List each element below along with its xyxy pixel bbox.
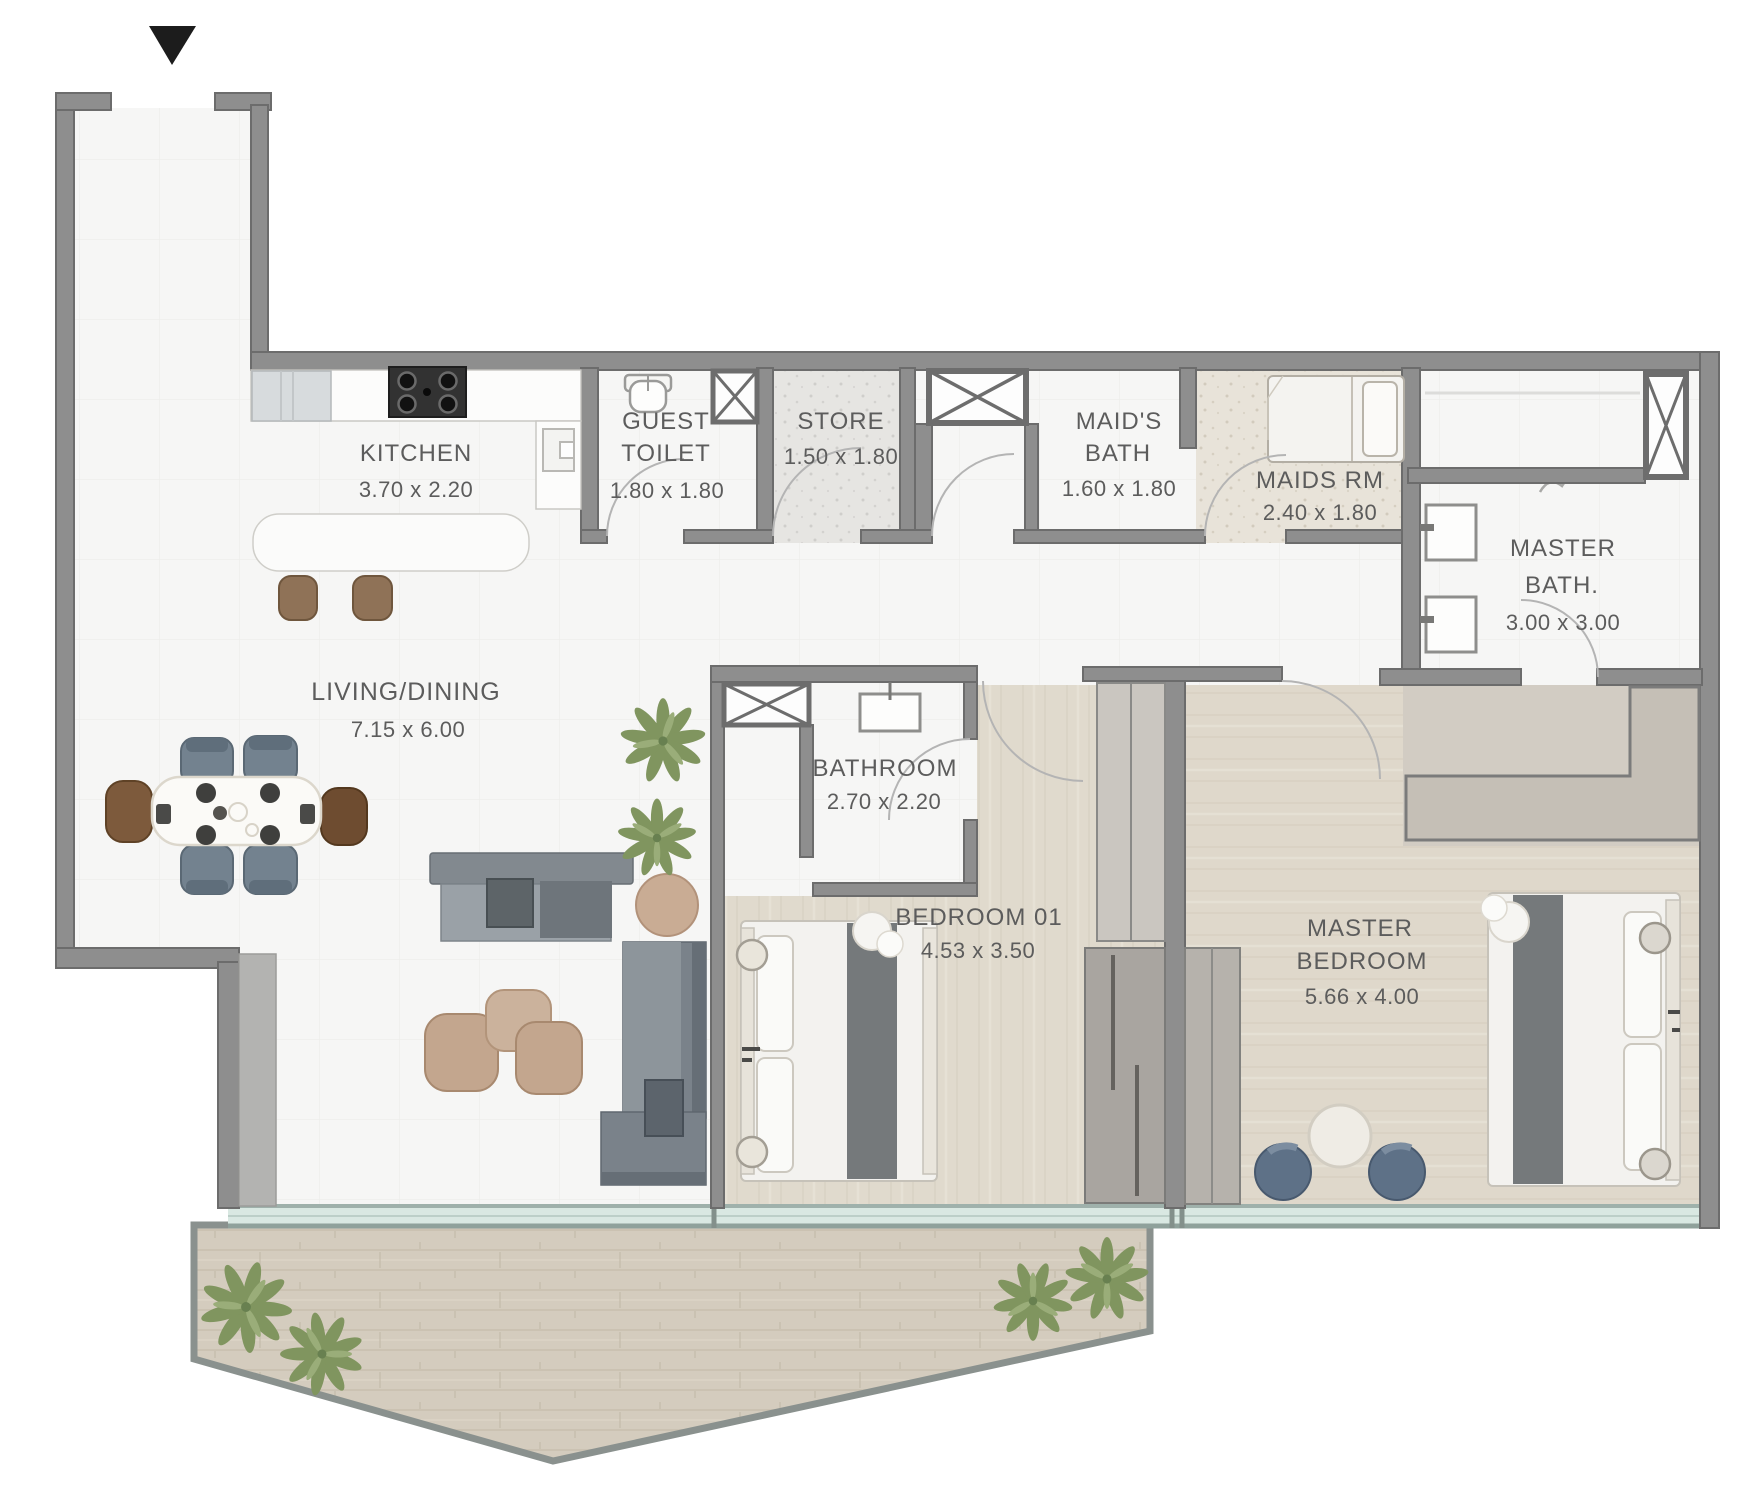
- svg-text:2.40 x 1.80: 2.40 x 1.80: [1263, 500, 1377, 525]
- svg-text:BEDROOM: BEDROOM: [1296, 948, 1427, 975]
- svg-text:LIVING/DINING: LIVING/DINING: [311, 678, 500, 706]
- svg-text:5.66 x 4.00: 5.66 x 4.00: [1305, 984, 1419, 1009]
- svg-text:MASTER: MASTER: [1510, 535, 1616, 562]
- svg-text:BATH.: BATH.: [1525, 572, 1599, 599]
- svg-text:1.60 x 1.80: 1.60 x 1.80: [1062, 476, 1176, 501]
- svg-text:BEDROOM 01: BEDROOM 01: [895, 904, 1062, 931]
- svg-text:BATHROOM: BATHROOM: [813, 755, 958, 782]
- svg-text:1.80 x 1.80: 1.80 x 1.80: [610, 478, 724, 503]
- svg-text:4.53 x 3.50: 4.53 x 3.50: [921, 938, 1035, 963]
- svg-text:MASTER: MASTER: [1307, 915, 1413, 942]
- svg-text:3.00 x 3.00: 3.00 x 3.00: [1506, 610, 1620, 635]
- svg-text:7.15 x 6.00: 7.15 x 6.00: [351, 717, 465, 742]
- svg-text:2.70 x 2.20: 2.70 x 2.20: [827, 789, 941, 814]
- svg-text:1.50 x 1.80: 1.50 x 1.80: [784, 444, 898, 469]
- svg-text:BATH: BATH: [1085, 440, 1151, 467]
- svg-text:GUEST: GUEST: [622, 408, 710, 435]
- svg-text:3.70 x 2.20: 3.70 x 2.20: [359, 477, 473, 502]
- svg-text:STORE: STORE: [797, 408, 884, 435]
- svg-text:MAID'S: MAID'S: [1076, 408, 1163, 435]
- svg-text:TOILET: TOILET: [621, 440, 711, 467]
- svg-text:MAIDS RM: MAIDS RM: [1256, 467, 1384, 494]
- svg-text:KITCHEN: KITCHEN: [360, 440, 472, 467]
